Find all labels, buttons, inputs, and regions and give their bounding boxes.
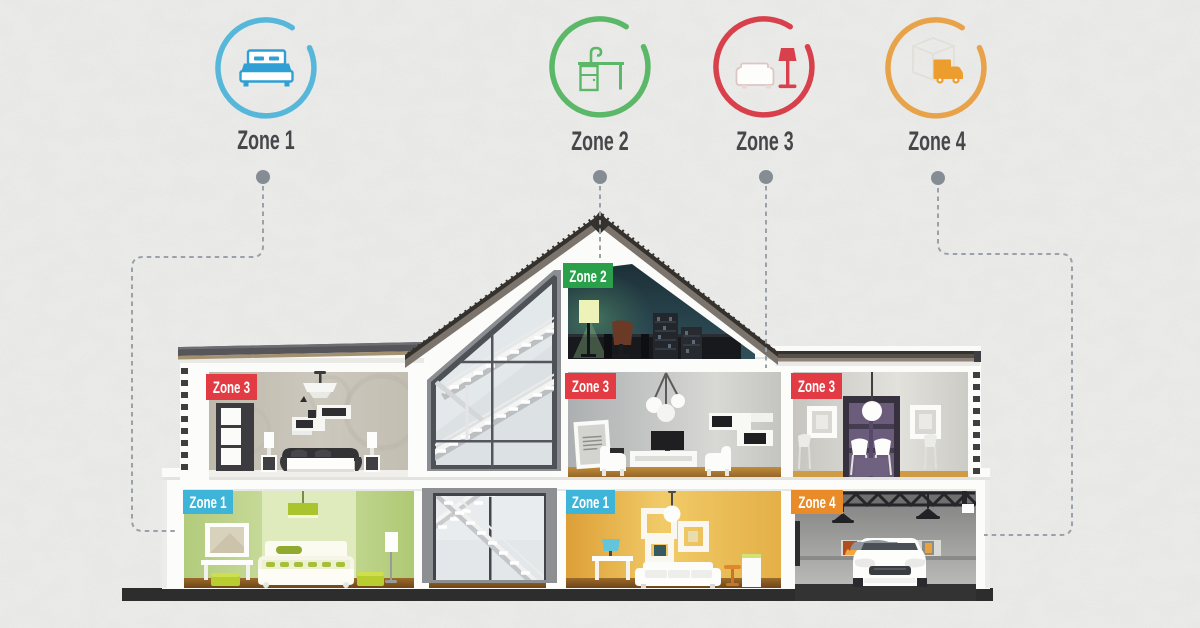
svg-text:Zone 4: Zone 4	[908, 125, 966, 156]
svg-text:Zone 3: Zone 3	[572, 378, 609, 397]
svg-text:Zone 2: Zone 2	[569, 268, 606, 287]
svg-text:Zone 1: Zone 1	[189, 494, 226, 513]
svg-text:Zone 4: Zone 4	[798, 494, 835, 513]
svg-text:Zone 1: Zone 1	[237, 124, 295, 155]
svg-text:Zone 3: Zone 3	[213, 379, 250, 398]
svg-text:Zone 2: Zone 2	[571, 125, 628, 156]
svg-text:Zone 1: Zone 1	[572, 494, 609, 513]
svg-text:Zone 3: Zone 3	[736, 125, 793, 156]
svg-text:Zone 3: Zone 3	[798, 378, 835, 397]
